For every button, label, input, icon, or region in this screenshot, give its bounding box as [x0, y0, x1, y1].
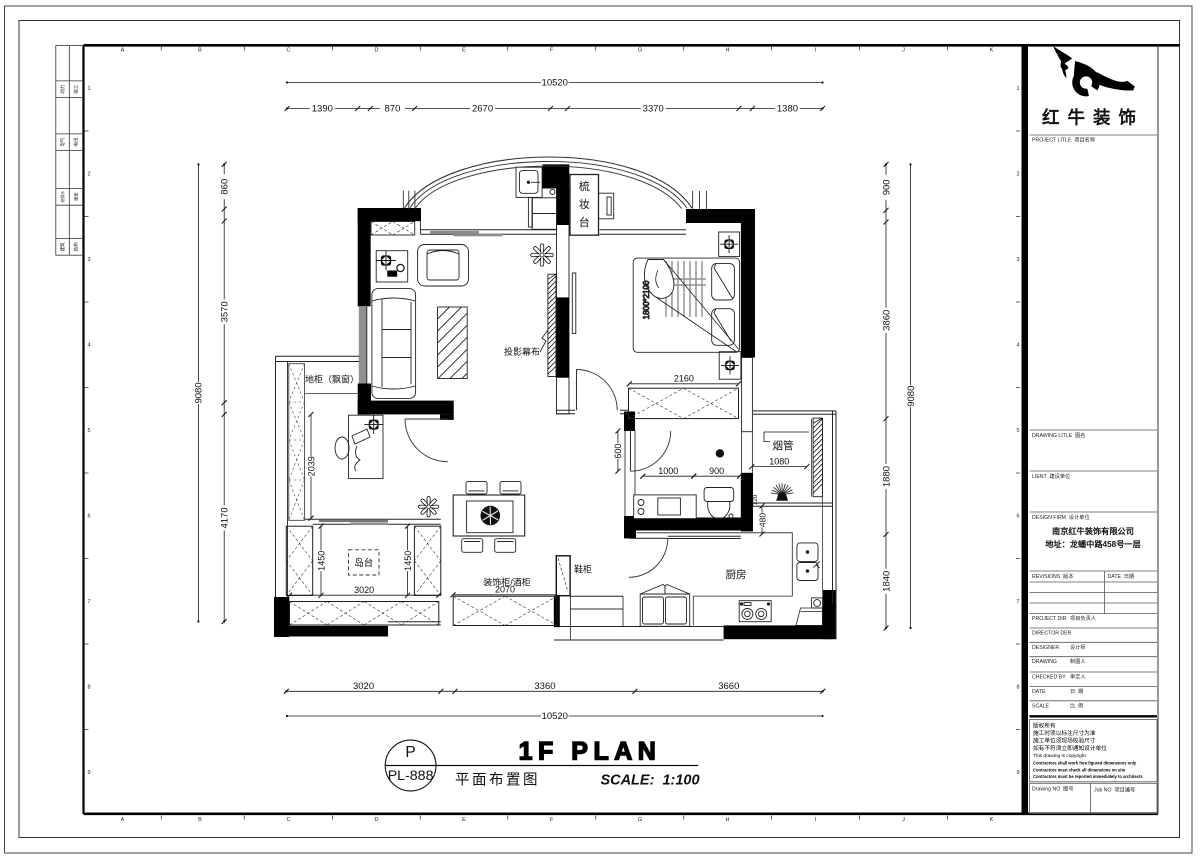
svg-text:3: 3 — [88, 257, 91, 263]
svg-text:烟管: 烟管 — [773, 439, 794, 452]
svg-text:9: 9 — [1016, 770, 1019, 776]
svg-text:900: 900 — [709, 466, 724, 476]
svg-text:动力: 动力 — [59, 84, 66, 94]
svg-text:比 例: 比 例 — [1070, 701, 1083, 709]
svg-text:B: B — [198, 48, 202, 54]
svg-text:C: C — [287, 817, 291, 823]
svg-text:10520: 10520 — [542, 711, 568, 722]
svg-text:1000: 1000 — [658, 466, 678, 476]
svg-text:地址：龙蟠中路458号一层: 地址：龙蟠中路458号一层 — [1045, 539, 1141, 549]
svg-text:1F PLAN: 1F PLAN — [519, 738, 662, 766]
svg-text:平面布置图: 平面布置图 — [455, 772, 540, 789]
svg-text:厨房: 厨房 — [726, 568, 747, 581]
svg-text:DATE: DATE — [1032, 689, 1046, 695]
svg-text:10520: 10520 — [542, 78, 568, 89]
svg-text:D: D — [375, 48, 379, 54]
svg-text:Drawing NO 图号: Drawing NO 图号 — [1032, 786, 1074, 793]
svg-text:P: P — [405, 744, 415, 761]
svg-text:9: 9 — [88, 770, 91, 776]
svg-text:J: J — [902, 817, 905, 823]
svg-text:1450: 1450 — [316, 551, 326, 571]
svg-text:1450: 1450 — [403, 551, 413, 571]
svg-text:5: 5 — [1016, 428, 1019, 434]
svg-text:版权所有: 版权所有 — [1033, 722, 1056, 730]
svg-text:6: 6 — [1016, 514, 1019, 520]
svg-text:900: 900 — [881, 179, 892, 195]
svg-text:地柜（飘窗）: 地柜（飘窗） — [305, 374, 359, 385]
svg-text:1800*2100: 1800*2100 — [642, 280, 651, 319]
svg-text:This drawing is copyright: This drawing is copyright — [1033, 753, 1086, 759]
svg-text:1390: 1390 — [312, 104, 333, 115]
svg-text:2160: 2160 — [674, 374, 694, 384]
svg-text:9080: 9080 — [194, 382, 205, 403]
svg-text:7: 7 — [1016, 599, 1019, 605]
svg-text:3570: 3570 — [220, 301, 231, 322]
svg-text:7: 7 — [88, 599, 91, 605]
svg-text:暖通: 暖通 — [74, 193, 79, 201]
svg-text:2: 2 — [1016, 172, 1019, 178]
svg-text:Job NO 项目编号: Job NO 项目编号 — [1094, 786, 1135, 794]
svg-text:DRAWING: DRAWING — [1032, 659, 1057, 665]
svg-text:1: 1 — [88, 86, 91, 92]
svg-text:E: E — [462, 817, 466, 823]
svg-text:480: 480 — [757, 513, 767, 527]
svg-text:K: K — [990, 48, 994, 54]
svg-text:结构: 结构 — [73, 242, 80, 252]
svg-text:8: 8 — [88, 685, 91, 691]
svg-text:600: 600 — [613, 444, 623, 459]
svg-text:120: 120 — [752, 494, 759, 505]
svg-text:3: 3 — [1016, 257, 1019, 263]
svg-text:1380: 1380 — [777, 104, 798, 115]
svg-text:1080: 1080 — [769, 456, 789, 466]
svg-text:鞋柜: 鞋柜 — [574, 564, 592, 575]
svg-text:J: J — [902, 48, 905, 54]
svg-text:870: 870 — [385, 104, 401, 115]
svg-text:SCALE: SCALE — [1032, 703, 1050, 709]
svg-text:DESIGNER: DESIGNER — [1032, 645, 1059, 651]
svg-text:日 期: 日 期 — [1070, 688, 1083, 695]
svg-text:PROJECT DIR: PROJECT DIR — [1032, 616, 1067, 622]
svg-text:DIRECTOR DER: DIRECTOR DER — [1032, 631, 1072, 637]
svg-text:K: K — [990, 817, 994, 823]
svg-text:竣工: 竣工 — [73, 84, 80, 94]
svg-text:PROJECT LITLE 项目名称: PROJECT LITLE 项目名称 — [1032, 136, 1095, 144]
svg-text:给排水: 给排水 — [60, 191, 65, 203]
svg-text:2070: 2070 — [495, 585, 515, 595]
svg-text:2: 2 — [88, 172, 91, 178]
svg-text:电讯: 电讯 — [73, 137, 80, 147]
svg-text:4: 4 — [1016, 343, 1019, 349]
svg-text:妆: 妆 — [579, 198, 590, 211]
svg-text:PL-888: PL-888 — [388, 768, 434, 784]
svg-text:3370: 3370 — [643, 104, 664, 115]
svg-text:C: C — [287, 48, 291, 54]
svg-text:Contractors must check all dim: Contractors must check all dimensions on… — [1033, 768, 1126, 773]
svg-text:DRAWING LITLE 图名: DRAWING LITLE 图名 — [1032, 431, 1085, 439]
svg-text:DESIGN FIRM 设计单位: DESIGN FIRM 设计单位 — [1032, 513, 1090, 521]
svg-text:梳: 梳 — [579, 179, 590, 193]
svg-text:1840: 1840 — [881, 571, 892, 592]
svg-text:台: 台 — [579, 215, 590, 229]
svg-text:REVISIONS 版本: REVISIONS 版本 — [1032, 572, 1074, 580]
svg-text:DATE 日期: DATE 日期 — [1108, 573, 1135, 580]
svg-text:A: A — [121, 48, 125, 54]
svg-text:5: 5 — [88, 428, 91, 434]
svg-text:岛台: 岛台 — [354, 557, 373, 569]
svg-text:2039: 2039 — [306, 456, 316, 476]
svg-text:制图人: 制图人 — [1070, 657, 1086, 665]
svg-text:如有不符须立即通知设计单位: 如有不符须立即通知设计单位 — [1033, 744, 1107, 752]
svg-text:CHECKED BY: CHECKED BY — [1032, 675, 1066, 681]
svg-text:3860: 3860 — [881, 310, 892, 331]
svg-text:4: 4 — [88, 343, 91, 349]
svg-text:电气: 电气 — [59, 137, 65, 147]
svg-text:施工单位须现场校验尺寸: 施工单位须现场校验尺寸 — [1033, 737, 1096, 745]
svg-text:建筑: 建筑 — [59, 242, 66, 252]
svg-text:施工时须以标注尺寸为准: 施工时须以标注尺寸为准 — [1033, 729, 1096, 737]
svg-text:红牛装饰: 红牛装饰 — [1042, 108, 1144, 128]
svg-text:6: 6 — [88, 514, 91, 520]
svg-text:9080: 9080 — [906, 386, 917, 407]
svg-text:1: 1 — [1016, 86, 1019, 92]
svg-text:3360: 3360 — [534, 681, 555, 692]
svg-text:H: H — [726, 48, 730, 54]
svg-text:南京红牛装饰有限公司: 南京红牛装饰有限公司 — [1052, 526, 1134, 536]
svg-text:D: D — [375, 817, 379, 823]
svg-text:SCALE: 1:100: SCALE: 1:100 — [600, 773, 699, 789]
svg-text:A: A — [121, 817, 125, 823]
svg-text:项目负责人: 项目负责人 — [1070, 614, 1096, 622]
svg-text:860: 860 — [220, 179, 231, 195]
svg-text:E: E — [462, 48, 466, 54]
svg-text:Contractors must be reported i: Contractors must be reported immediately… — [1033, 774, 1143, 779]
svg-text:1880: 1880 — [881, 466, 892, 487]
svg-text:B: B — [198, 817, 202, 823]
svg-text:投影幕布: 投影幕布 — [504, 346, 540, 357]
svg-text:设计师: 设计师 — [1070, 643, 1086, 651]
svg-text:4170: 4170 — [220, 507, 231, 528]
svg-text:8: 8 — [1016, 685, 1019, 691]
svg-text:3020: 3020 — [353, 681, 374, 692]
svg-text:2670: 2670 — [472, 104, 493, 115]
svg-text:审定人: 审定人 — [1070, 673, 1086, 681]
svg-text:LIENT 建设单位: LIENT 建设单位 — [1032, 472, 1070, 480]
svg-text:3020: 3020 — [354, 585, 374, 595]
svg-text:G: G — [638, 817, 642, 823]
svg-text:H: H — [726, 817, 730, 823]
svg-text:Contractors shall work fore fi: Contractors shall work fore figured dime… — [1033, 761, 1137, 766]
svg-text:G: G — [638, 48, 642, 54]
svg-text:3660: 3660 — [718, 681, 739, 692]
